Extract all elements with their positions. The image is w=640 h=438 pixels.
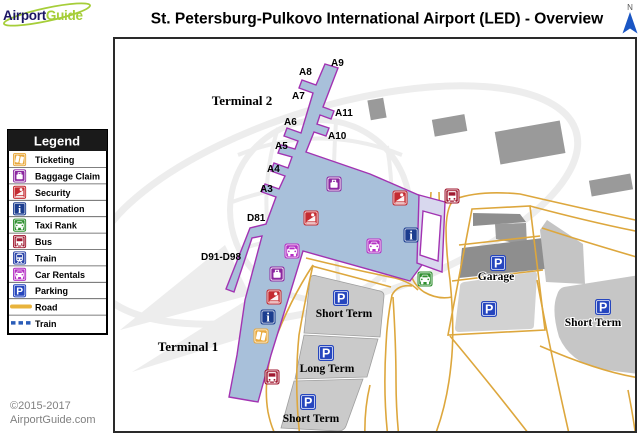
svg-text:Train: Train (35, 253, 57, 263)
svg-text:Train: Train (35, 319, 57, 329)
svg-text:A3: A3 (260, 184, 273, 195)
svg-text:D81: D81 (247, 213, 266, 224)
svg-text:AirportGuide: AirportGuide (3, 8, 83, 23)
svg-text:A8: A8 (299, 67, 312, 78)
svg-text:Security: Security (35, 188, 71, 198)
svg-text:A11: A11 (335, 108, 353, 119)
svg-text:A5: A5 (275, 141, 288, 152)
svg-text:Car Rentals: Car Rentals (35, 270, 85, 280)
svg-text:©2015-2017: ©2015-2017 (10, 400, 71, 412)
svg-text:A4: A4 (267, 164, 280, 175)
svg-text:Long Term: Long Term (300, 363, 355, 375)
svg-text:Garage: Garage (478, 271, 514, 283)
svg-text:A7: A7 (292, 91, 305, 102)
svg-text:Short Term: Short Term (316, 308, 373, 320)
svg-text:St. Petersburg-Pulkovo Interna: St. Petersburg-Pulkovo International Air… (151, 11, 604, 28)
svg-text:Terminal 1: Terminal 1 (158, 339, 219, 354)
svg-text:Taxi Rank: Taxi Rank (35, 221, 78, 231)
svg-text:Short Term: Short Term (283, 413, 340, 425)
svg-text:Baggage Claim: Baggage Claim (35, 171, 100, 181)
svg-text:Terminal 2: Terminal 2 (212, 93, 273, 108)
svg-text:Parking: Parking (35, 286, 68, 296)
svg-text:Short Term: Short Term (565, 317, 622, 329)
svg-text:Information: Information (35, 204, 85, 214)
svg-text:N: N (627, 3, 633, 12)
svg-text:Legend: Legend (34, 134, 80, 149)
svg-text:A6: A6 (284, 117, 297, 128)
svg-text:AirportGuide.com: AirportGuide.com (10, 414, 96, 426)
svg-text:A9: A9 (331, 58, 344, 69)
svg-text:D91-D98: D91-D98 (201, 252, 241, 263)
svg-text:A10: A10 (328, 131, 347, 142)
svg-text:Ticketing: Ticketing (35, 155, 74, 165)
svg-text:Road: Road (35, 303, 58, 313)
svg-text:Bus: Bus (35, 237, 52, 247)
